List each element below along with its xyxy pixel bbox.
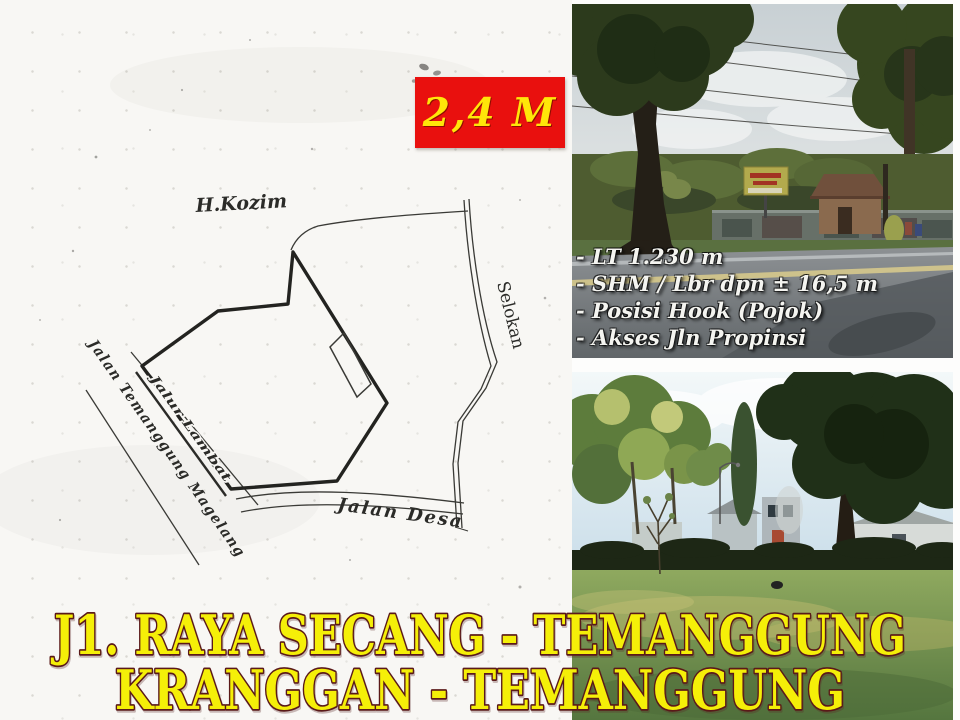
ditch-label: Selokan: [492, 279, 528, 351]
detail-land-area: - LT 1.230 m: [576, 243, 951, 270]
neighbor-label: H.Kozim: [194, 190, 287, 217]
neighbor-boundary-line: [291, 211, 468, 250]
detail-corner-position: - Posisi Hook (Pojok): [576, 297, 951, 324]
price-tag-label: 2,4 M: [423, 90, 558, 136]
detail-certificate-frontage: - SHM / Lbr dpn ± 16,5 m: [576, 270, 951, 297]
location-title-line2: KRANGGAN - TEMANGGUNG: [115, 658, 845, 720]
land-sale-flyer: H.Kozim Selokan Jalan Desa Jalan Temangg…: [0, 0, 960, 720]
property-details: - LT 1.230 m - SHM / Lbr dpn ± 16,5 m - …: [576, 243, 951, 351]
price-tag: 2,4 M: [415, 77, 565, 148]
road-frontage-photo: - LT 1.230 m - SHM / Lbr dpn ± 16,5 m - …: [572, 4, 953, 358]
location-title: J1. RAYA SECANG - TEMANGGUNG KRANGGAN - …: [0, 592, 960, 720]
village-road-label: Jalan Desa: [333, 494, 465, 533]
ditch-lines: [453, 199, 497, 531]
detail-road-access: - Akses Jln Propinsi: [576, 324, 951, 351]
